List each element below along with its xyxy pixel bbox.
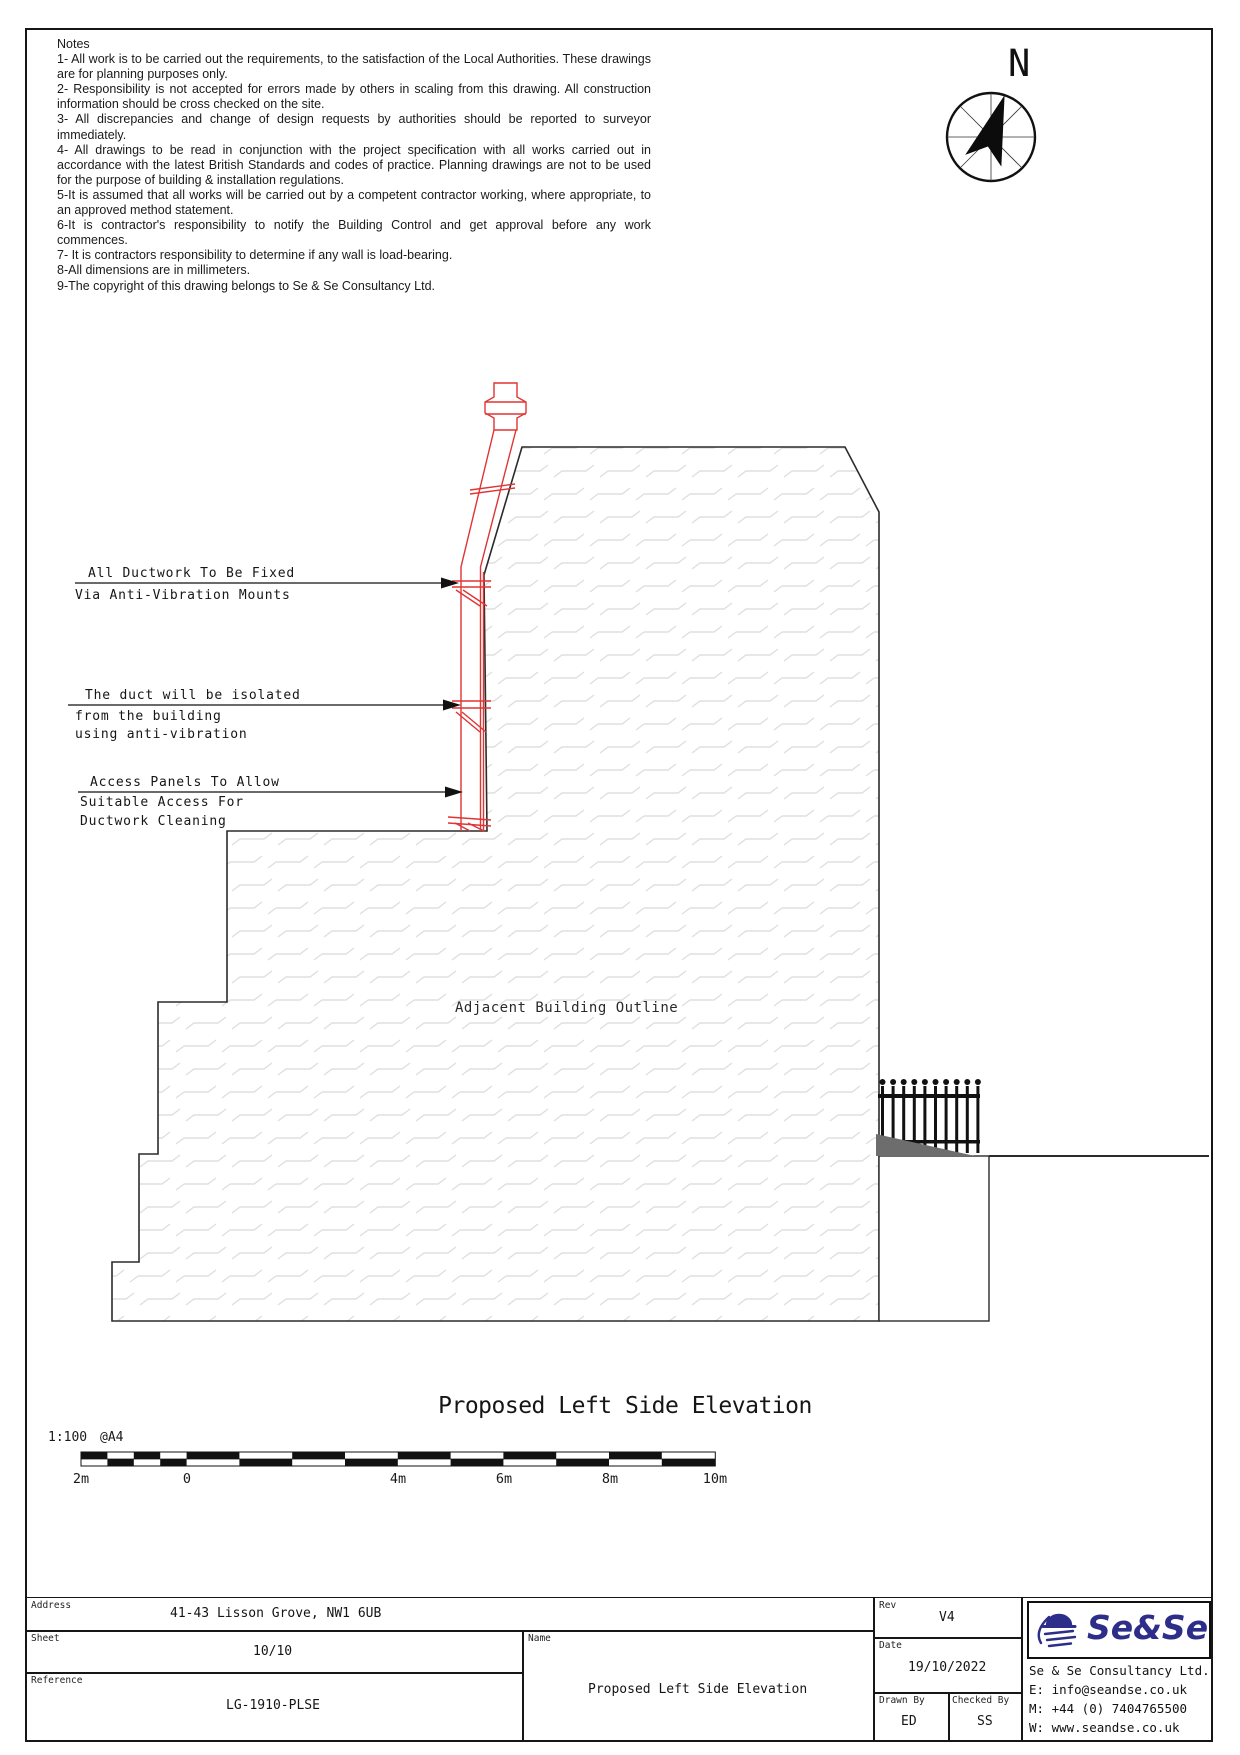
note-item: 1- All work is to be carried out the req…	[57, 52, 651, 82]
scale-tick-label: 4m	[390, 1471, 406, 1487]
lightwell-wall	[879, 1156, 989, 1321]
notes-block: Notes 1- All work is to be carried out t…	[57, 37, 651, 294]
company-logo-box: Se&Se	[1027, 1601, 1211, 1659]
duct-cowl	[485, 383, 526, 430]
rev-label: Rev	[879, 1600, 896, 1611]
sheet-label: Sheet	[31, 1633, 60, 1644]
scale-tick-label: 0	[183, 1471, 191, 1487]
note-item: 5-It is assumed that all works will be c…	[57, 188, 651, 218]
annotation-access-panels-line2: Suitable Access For	[80, 795, 244, 810]
titleblock-cell-address	[25, 1597, 875, 1632]
north-compass-icon	[947, 89, 1035, 181]
note-item: 4- All drawings to be read in conjunctio…	[57, 143, 651, 188]
annotation-access-panels-line1: Access Panels To Allow	[90, 775, 280, 790]
company-mobile: M: +44 (0) 7404765500	[1029, 1701, 1187, 1716]
scale-tick-label: 6m	[496, 1471, 512, 1487]
note-item: 6-It is contractor's responsibility to n…	[57, 218, 651, 248]
sheet-value: 10/10	[253, 1644, 292, 1659]
note-item: 9-The copyright of this drawing belongs …	[57, 279, 651, 294]
company-email: E: info@seandse.co.uk	[1029, 1682, 1187, 1697]
scale-bar	[81, 1452, 715, 1466]
reference-label: Reference	[31, 1675, 82, 1686]
drawn-by-label: Drawn By	[879, 1695, 925, 1706]
annotation-duct-isolated-line2: from the building	[75, 709, 222, 724]
note-item: 8-All dimensions are in millimeters.	[57, 263, 651, 278]
annotation-duct-isolated-line3: using anti-vibration	[75, 727, 248, 742]
annotation-duct-isolated-line1: The duct will be isolated	[85, 688, 301, 703]
scale-tick-label: 10m	[703, 1471, 727, 1487]
drawn-by-value: ED	[901, 1714, 917, 1729]
address-value: 41-43 Lisson Grove, NW1 6UB	[170, 1606, 381, 1621]
scale-tick-label: 8m	[602, 1471, 618, 1487]
reference-value: LG-1910-PLSE	[226, 1698, 320, 1713]
drawing-sheet: Notes 1- All work is to be carried out t…	[0, 0, 1240, 1755]
date-value: 19/10/2022	[908, 1660, 986, 1675]
company-logo-icon	[1033, 1605, 1087, 1655]
rev-value: V4	[939, 1610, 955, 1625]
company-logo-text: Se&Se	[1087, 1608, 1208, 1647]
company-name: Se & Se Consultancy Ltd.	[1029, 1663, 1210, 1678]
adjacent-building-label: Adjacent Building Outline	[455, 1000, 678, 1016]
annotation-access-panels-line3: Ductwork Cleaning	[80, 814, 227, 829]
checked-by-value: SS	[977, 1714, 993, 1729]
name-label: Name	[528, 1633, 551, 1644]
address-label: Address	[31, 1600, 71, 1611]
name-value: Proposed Left Side Elevation	[588, 1682, 807, 1697]
note-item: 3- All discrepancies and change of desig…	[57, 112, 651, 142]
note-item: 2- Responsibility is not accepted for er…	[57, 82, 651, 112]
annotation-duct-fixed-line1: All Ductwork To Be Fixed	[88, 566, 295, 581]
north-label: N	[1008, 42, 1030, 85]
note-item: 7- It is contractors responsibility to d…	[57, 248, 651, 263]
notes-heading: Notes	[57, 37, 651, 52]
checked-by-label: Checked By	[952, 1695, 1009, 1706]
drawing-title: Proposed Left Side Elevation	[435, 1393, 815, 1419]
company-web: W: www.seandse.co.uk	[1029, 1720, 1180, 1735]
scale-paper-size: @A4	[100, 1430, 123, 1445]
date-label: Date	[879, 1640, 902, 1651]
annotation-duct-fixed-line2: Via Anti-Vibration Mounts	[75, 588, 291, 603]
scale-ratio: 1:100	[48, 1430, 87, 1445]
railing-fence	[876, 1079, 981, 1156]
scale-tick-label: 2m	[73, 1471, 89, 1487]
